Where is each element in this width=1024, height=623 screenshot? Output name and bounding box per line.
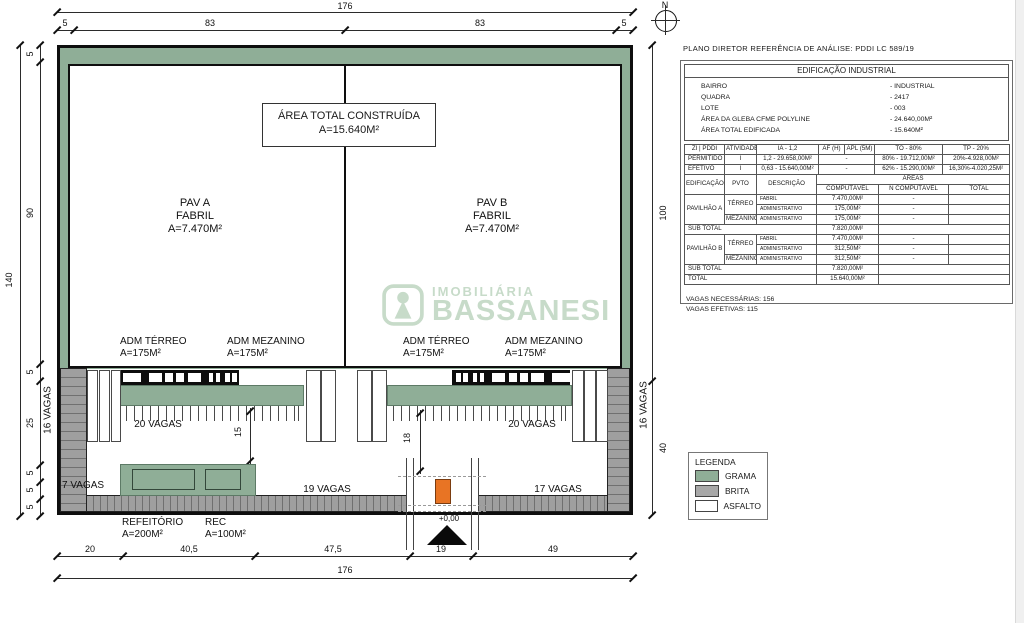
dim-top-seg: 83: [205, 18, 215, 28]
parking-stall: [99, 370, 110, 442]
rec-room: [205, 469, 241, 490]
adm-fixture: [225, 373, 230, 382]
areas-cell: [949, 215, 1010, 225]
pav-b-name: PAV B: [465, 197, 519, 210]
info-row: ÁREA TOTAL EDIFICADA - 15.640M²: [685, 125, 1008, 136]
parking-stall: [596, 370, 608, 442]
gravel-strip-bottom-left: [87, 495, 406, 512]
dim-right-seg: 100: [658, 205, 668, 220]
areas-cell: [879, 265, 1010, 275]
areas-cell: ADMINISTRATIVO: [757, 255, 817, 265]
areas-subtotal-value: 7.820,00M²: [817, 225, 879, 235]
building-info-body: BAIRRO - INDUSTRIAL QUADRA - 2417 LOTE -…: [685, 78, 1008, 140]
dim-tick: [629, 574, 637, 582]
info-value: - INDUSTRIAL: [890, 81, 1008, 92]
areas-cell: 175,00M²: [817, 215, 879, 225]
refeitorio-name: REFEITÓRIO: [122, 517, 183, 529]
zoning-header: IA - 1,2: [757, 145, 819, 155]
refeitorio-label: REFEITÓRIO A=200M²: [122, 517, 183, 541]
adm-fixture: [531, 373, 544, 382]
info-row: LOTE - 003: [685, 103, 1008, 114]
pav-b-use: FABRIL: [465, 210, 519, 223]
dim-line: [20, 45, 21, 516]
areas-cell: -: [879, 245, 949, 255]
areas-cell: -: [879, 255, 949, 265]
legend: LEGENDA GRAMA BRITA ASFALTO: [688, 452, 768, 520]
adm-fixture: [176, 373, 184, 382]
adm-fixture: [520, 373, 528, 382]
legend-label: ASFALTO: [724, 501, 761, 511]
total-area-value: A=15.640M²: [263, 123, 435, 137]
zoning-cell: -: [819, 165, 875, 175]
adm-terreo-b-label: ADM TÉRREO A=175M²: [403, 336, 470, 360]
areas-cell: 312,50M²: [817, 245, 879, 255]
adm-fixture: [509, 373, 517, 382]
zoning-header: APL (5M): [845, 145, 875, 155]
areas-header: Ñ COMPUTÁVEL: [879, 185, 949, 195]
dim-tick: [16, 512, 24, 520]
window-edge: [1015, 0, 1024, 623]
adm-fixture: [149, 373, 162, 382]
zoning-table: ZI | PDDI ATIVIDADE IA - 1,2 AF (H) APL …: [684, 144, 1010, 175]
dim-tick: [629, 26, 637, 34]
adm-label-line: A=175M²: [120, 348, 187, 360]
zoning-panel: EDIFICAÇÃO INDUSTRIAL BAIRRO - INDUSTRIA…: [680, 60, 1013, 304]
areas-cell: 175,00M²: [817, 205, 879, 215]
zoning-cell: 0,63 - 15.640,00M²: [757, 165, 819, 175]
parking-stall: [87, 370, 98, 442]
vagas-right-strip-label: 16 VAGAS: [639, 381, 650, 429]
vagas-necessarias: VAGAS NECESSÁRIAS: 156: [686, 295, 1009, 305]
legend-row-asfalto: ASFALTO: [695, 500, 761, 512]
areas-cell: FABRIL: [757, 195, 817, 205]
areas-subtotal-label: SUB TOTAL: [685, 265, 817, 275]
adm-label-line: A=175M²: [227, 348, 305, 360]
gravel-strip-right: [607, 368, 630, 512]
zoning-cell: 1,2 - 29.658,00M²: [757, 155, 819, 165]
zoning-cell: PERMITIDO: [685, 155, 725, 165]
vagas-lot-b-label: 20 VAGAS: [508, 419, 556, 430]
rec-label: REC A=100M²: [205, 517, 246, 541]
adm-fixture: [492, 373, 505, 382]
guardhouse: [435, 479, 451, 504]
dim-tick: [36, 512, 44, 520]
areas-cell: [949, 235, 1010, 245]
parking-stall: [572, 370, 584, 442]
info-label: ÁREA TOTAL EDIFICADA: [701, 125, 890, 136]
zoning-header: ATIVIDADE: [725, 145, 757, 155]
zoning-header: TP - 20%: [943, 145, 1010, 155]
adm-fixture: [232, 373, 237, 382]
dim-line: [57, 578, 633, 579]
adm-fixture: [188, 373, 201, 382]
pav-b-area: A=7.470M²: [465, 223, 519, 236]
vagas-note: VAGAS NECESSÁRIAS: 156 VAGAS EFETIVAS: 1…: [684, 295, 1009, 315]
legend-title: LEGENDA: [695, 457, 761, 467]
info-value: - 003: [890, 103, 1008, 114]
dim-line: [420, 410, 421, 474]
grass-strip-b: [387, 385, 572, 406]
info-value: - 15.640M²: [890, 125, 1008, 136]
rec-area: A=100M²: [205, 529, 246, 541]
north-compass-icon: [655, 10, 677, 32]
total-area-box: ÁREA TOTAL CONSTRUÍDA A=15.640M²: [262, 103, 436, 147]
areas-total-value: 15.640,00M²: [817, 275, 879, 285]
parking-stall: [357, 370, 372, 442]
rec-name: REC: [205, 517, 246, 529]
dim-left-total: 140: [4, 272, 14, 287]
entrance-line: [413, 458, 414, 550]
areas-subtotal-value: 7.820,00M²: [817, 265, 879, 275]
areas-cell: TÉRREO: [725, 235, 757, 255]
entrance-marker-triangle: [427, 525, 467, 545]
dim-line: [57, 556, 633, 557]
adm-label-line: A=175M²: [403, 348, 470, 360]
zoning-header: TO - 80%: [875, 145, 943, 155]
gravel-strip-bottom-right: [479, 495, 607, 512]
areas-cell: [949, 255, 1010, 265]
north-axis-horizontal: [651, 20, 680, 21]
dim-bottom-seg: 40,5: [180, 544, 198, 554]
areas-cell: 7.470,00M²: [817, 195, 879, 205]
dim-tick: [648, 511, 656, 519]
zoning-cell: 16,30%-4.020,25M²: [943, 165, 1010, 175]
entrance-dashed-line: [398, 505, 486, 506]
zoning-cell: 62% - 15.290,00M²: [875, 165, 943, 175]
parking-stall: [306, 370, 321, 442]
areas-cell: ADMINISTRATIVO: [757, 205, 817, 215]
asphalt-swatch: [695, 500, 718, 512]
areas-cell: -: [879, 205, 949, 215]
adm-terreo-a-label: ADM TÉRREO A=175M²: [120, 336, 187, 360]
parking-stall: [321, 370, 336, 442]
zoning-cell: EFETIVO: [685, 165, 725, 175]
dim-right-seg: 40: [658, 443, 668, 453]
adm-block-b: [452, 370, 570, 385]
adm-fixture: [165, 373, 173, 382]
zoning-cell: 80% - 19.712,00M²: [875, 155, 943, 165]
adm-label-line: ADM TÉRREO: [120, 336, 187, 348]
pav-a-name: PAV A: [168, 197, 222, 210]
areas-cell: [949, 245, 1010, 255]
areas-cell: -: [879, 215, 949, 225]
areas-cell: PAVILHÃO B: [685, 235, 725, 265]
areas-cell: [949, 195, 1010, 205]
entrance-dashed-line: [398, 476, 486, 477]
adm-label-line: ADM TÉRREO: [403, 336, 470, 348]
dim-bottom-seg: 49: [548, 544, 558, 554]
dim-line: [652, 45, 653, 515]
vagas-bottom-right-label: 17 VAGAS: [534, 484, 582, 495]
info-row: QUADRA - 2417: [685, 92, 1008, 103]
vagas-left-strip-label: 16 VAGAS: [43, 386, 54, 434]
vagas-efetivas: VAGAS EFETIVAS: 115: [686, 305, 1009, 315]
zoning-cell: 20%-4.928,00M²: [943, 155, 1010, 165]
dim-bottom-seg: 19: [436, 544, 446, 554]
dim-line: [57, 12, 633, 13]
dim-bottom-seg: 47,5: [324, 544, 342, 554]
info-row: ÁREA DA GLEBA CFME POLYLINE - 24.640,00M…: [685, 114, 1008, 125]
adm-mezanino-b-label: ADM MEZANINO A=175M²: [505, 336, 583, 360]
areas-subtotal-label: SUB TOTAL: [685, 225, 817, 235]
info-row: BAIRRO - INDUSTRIAL: [685, 81, 1008, 92]
dim-tick: [629, 8, 637, 16]
pav-a-area: A=7.470M²: [168, 223, 222, 236]
dim-left-seg: 5: [25, 470, 35, 475]
vagas-lot-a-label: 20 VAGAS: [134, 419, 182, 430]
adm-block-a: [119, 370, 239, 385]
grass-strip-a: [119, 385, 304, 406]
vagas-bottom-left-label: 7 VAGAS: [62, 480, 104, 492]
areas-cell: FABRIL: [757, 235, 817, 245]
adm-fixture: [456, 373, 461, 382]
areas-cell: ADMINISTRATIVO: [757, 215, 817, 225]
adm-fixture: [473, 373, 477, 382]
areas-cell: TÉRREO: [725, 195, 757, 215]
areas-header: TOTAL: [949, 185, 1010, 195]
adm-label-line: A=175M²: [505, 348, 583, 360]
entrance-level-label: +0,00: [439, 514, 459, 523]
dim-left-seg: 90: [25, 208, 35, 218]
entrance-line: [406, 458, 407, 550]
dim-bottom-seg: 20: [85, 544, 95, 554]
areas-cell: 7.470,00M²: [817, 235, 879, 245]
areas-cell: PAVILHÃO A: [685, 195, 725, 225]
dim-top-total: 176: [337, 1, 352, 11]
entrance-line: [478, 458, 479, 550]
info-label: QUADRA: [701, 92, 890, 103]
adm-fixture: [209, 373, 213, 382]
legend-label: GRAMA: [725, 471, 756, 481]
parking-stall: [584, 370, 596, 442]
dim-line: [40, 45, 41, 516]
dim-tick: [629, 552, 637, 560]
dim-bottom-total: 176: [337, 565, 352, 575]
areas-header: PVTO: [725, 175, 757, 195]
gravel-swatch: [695, 485, 719, 497]
areas-header: ÁREAS: [817, 175, 1010, 185]
parking-stall: [111, 370, 121, 442]
info-label: LOTE: [701, 103, 890, 114]
dim-left-seg: 25: [25, 418, 35, 428]
info-value: - 24.640,00M²: [890, 114, 1008, 125]
dim-inner-left: 15: [233, 427, 243, 437]
zoning-cell: I: [725, 155, 757, 165]
areas-cell: MEZANINO: [725, 255, 757, 265]
areas-cell: [949, 205, 1010, 215]
dim-top-seg: 5: [621, 18, 626, 28]
areas-cell: 312,50M²: [817, 255, 879, 265]
legend-row-grama: GRAMA: [695, 470, 761, 482]
areas-cell: -: [879, 235, 949, 245]
areas-header: DESCRIÇÃO: [757, 175, 817, 195]
info-label: ÁREA DA GLEBA CFME POLYLINE: [701, 114, 890, 125]
adm-fixture: [480, 373, 484, 382]
areas-cell: [879, 275, 1010, 285]
entrance-line: [471, 458, 472, 550]
areas-header: EDIFICAÇÃO: [685, 175, 725, 195]
refeitorio-area: A=200M²: [122, 529, 183, 541]
adm-mezanino-a-label: ADM MEZANINO A=175M²: [227, 336, 305, 360]
pav-a-label: PAV A FABRIL A=7.470M²: [168, 197, 222, 236]
parking-stall: [372, 370, 387, 442]
dim-top-seg: 5: [62, 18, 67, 28]
adm-fixture: [123, 373, 141, 382]
areas-cell: MEZANINO: [725, 215, 757, 225]
adm-fixture: [552, 373, 570, 382]
adm-label-line: ADM MEZANINO: [505, 336, 583, 348]
areas-header: COMPUTÁVEL: [817, 185, 879, 195]
zoning-header: AF (H): [819, 145, 845, 155]
areas-cell: -: [879, 195, 949, 205]
dim-top-seg: 83: [475, 18, 485, 28]
dim-left-seg: 5: [25, 487, 35, 492]
pav-a-use: FABRIL: [168, 210, 222, 223]
panel-title: PLANO DIRETOR REFERÊNCIA DE ANÁLISE: PDD…: [683, 44, 914, 53]
building-info-table: EDIFICAÇÃO INDUSTRIAL BAIRRO - INDUSTRIA…: [684, 64, 1009, 141]
adm-fixture: [463, 373, 468, 382]
legend-row-brita: BRITA: [695, 485, 761, 497]
dim-left-seg: 5: [25, 51, 35, 56]
areas-total-label: TOTAL: [685, 275, 817, 285]
building-info-header: EDIFICAÇÃO INDUSTRIAL: [685, 65, 1008, 78]
total-area-title: ÁREA TOTAL CONSTRUÍDA: [263, 109, 435, 123]
zoning-cell: I: [725, 165, 757, 175]
areas-cell: ADMINISTRATIVO: [757, 245, 817, 255]
dim-left-seg: 5: [25, 369, 35, 374]
zoning-cell: -: [819, 155, 875, 165]
adm-label-line: ADM MEZANINO: [227, 336, 305, 348]
info-label: BAIRRO: [701, 81, 890, 92]
dim-line: [250, 408, 251, 464]
site-plan-canvas: N 176 5 83 83 5 140 5 90 5 25 5 5 5 100 …: [0, 0, 1024, 623]
dim-left-seg: 5: [25, 504, 35, 509]
grass-swatch: [695, 470, 719, 482]
entrance-dashed-line: [398, 511, 486, 512]
areas-cell: [879, 225, 1010, 235]
legend-label: BRITA: [725, 486, 749, 496]
adm-fixture: [216, 373, 220, 382]
refeitorio-room: [132, 469, 195, 490]
areas-table: EDIFICAÇÃO PVTO DESCRIÇÃO ÁREAS COMPUTÁV…: [684, 174, 1010, 285]
vagas-bottom-center-label: 19 VAGAS: [303, 484, 351, 495]
dim-inner-right: 18: [402, 433, 412, 443]
pav-b-label: PAV B FABRIL A=7.470M²: [465, 197, 519, 236]
zoning-header: ZI | PDDI: [685, 145, 725, 155]
info-value: - 2417: [890, 92, 1008, 103]
